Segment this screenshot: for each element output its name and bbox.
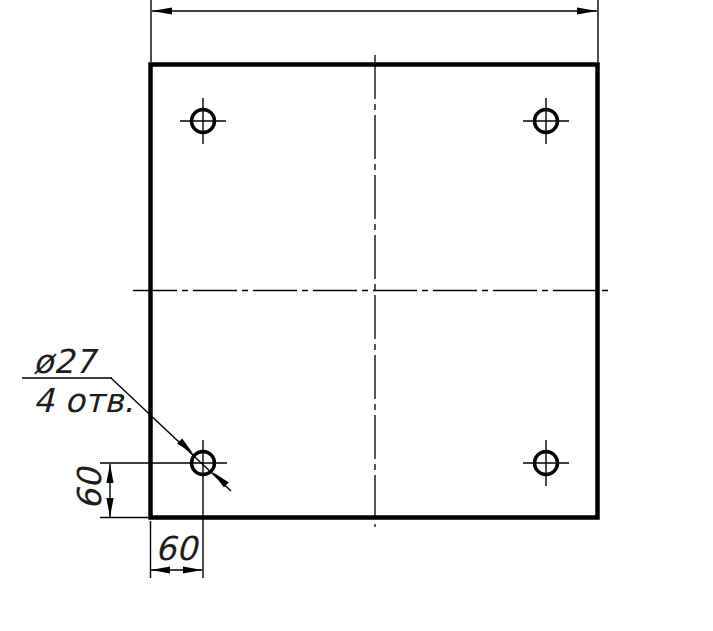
dimension-text-horizontal: 60 bbox=[155, 529, 200, 568]
hole-bottom-right bbox=[523, 440, 569, 486]
arrowhead-left-icon bbox=[152, 7, 172, 14]
engineering-drawing-canvas: ø27 4 отв. 60 60 bbox=[0, 0, 713, 631]
leader-arrowhead-lower-icon bbox=[213, 472, 229, 488]
arrowhead-right-icon bbox=[577, 7, 597, 14]
leader-arrowhead-upper-icon bbox=[177, 438, 193, 454]
callout-diameter-text: ø27 bbox=[33, 342, 99, 381]
callout-count-text: 4 отв. bbox=[33, 381, 134, 420]
dimension-hole-offset-vertical: 60 bbox=[70, 464, 148, 518]
hole-top-right bbox=[523, 98, 569, 144]
dimension-overall-width bbox=[151, 0, 598, 62]
hole-top-left bbox=[180, 98, 226, 144]
dimension-hole-offset-horizontal: 60 bbox=[151, 521, 203, 578]
dimension-text-vertical: 60 bbox=[70, 465, 109, 510]
plate-drawing: ø27 4 отв. 60 60 bbox=[0, 0, 713, 631]
hole-callout: ø27 4 отв. bbox=[22, 342, 231, 491]
